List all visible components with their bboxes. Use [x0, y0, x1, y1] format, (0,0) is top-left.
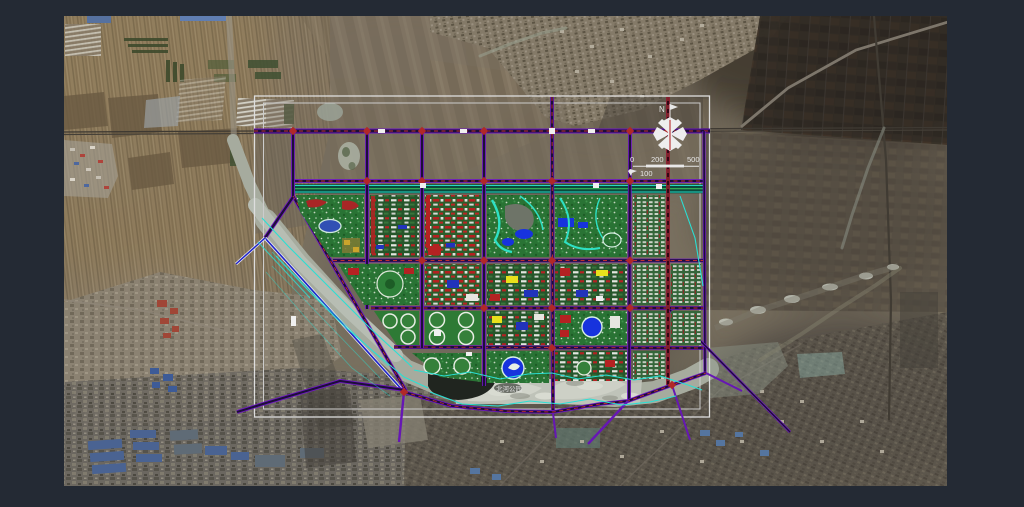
svg-text:0: 0 — [630, 155, 634, 164]
svg-text:N: N — [659, 105, 665, 114]
svg-text:500: 500 — [687, 155, 700, 164]
svg-text:200: 200 — [651, 155, 664, 164]
svg-text:北河公园: 北河公园 — [496, 385, 522, 393]
svg-text:100: 100 — [640, 169, 653, 178]
